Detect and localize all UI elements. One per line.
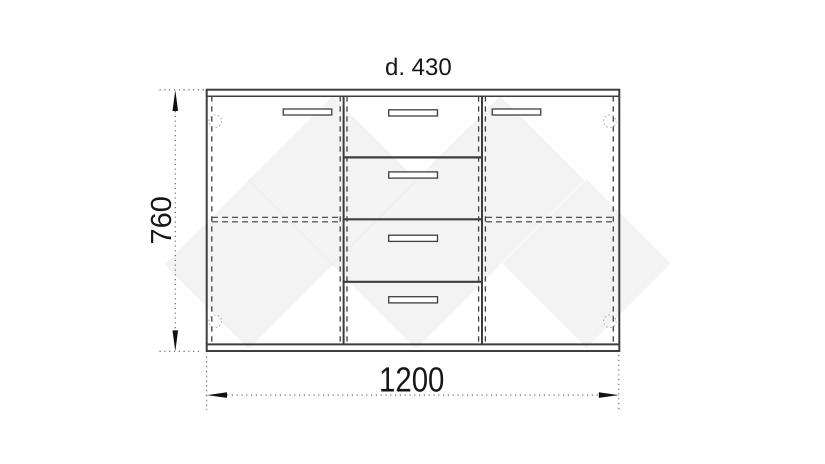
svg-text:760: 760 <box>146 196 178 244</box>
svg-text:d. 430: d. 430 <box>385 54 452 81</box>
svg-text:1200: 1200 <box>379 361 444 400</box>
